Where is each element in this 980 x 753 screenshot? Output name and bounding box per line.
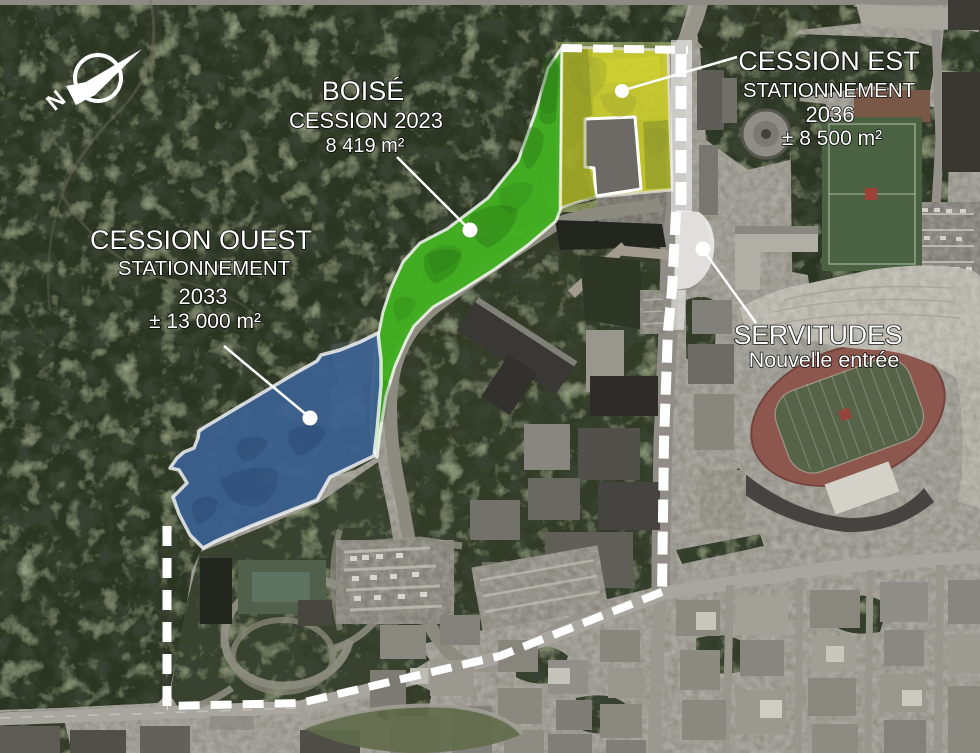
svg-text:CESSION OUEST: CESSION OUEST: [90, 225, 312, 255]
svg-text:2036: 2036: [806, 102, 855, 127]
svg-text:CESSION 2023: CESSION 2023: [289, 108, 443, 133]
svg-text:SERVITUDES: SERVITUDES: [734, 320, 903, 350]
svg-text:BOISÉ: BOISÉ: [322, 76, 405, 106]
svg-text:Nouvelle entrée: Nouvelle entrée: [749, 348, 900, 372]
svg-text:STATIONNEMENT: STATIONNEMENT: [743, 79, 916, 102]
svg-text:CESSION EST: CESSION EST: [738, 46, 920, 76]
svg-text:± 13 000 m²: ± 13 000 m²: [149, 310, 261, 333]
svg-text:STATIONNEMENT: STATIONNEMENT: [118, 257, 291, 280]
svg-text:8 419 m²: 8 419 m²: [326, 135, 405, 157]
svg-text:2033: 2033: [179, 284, 228, 309]
svg-text:± 8 500 m²: ± 8 500 m²: [782, 127, 882, 150]
